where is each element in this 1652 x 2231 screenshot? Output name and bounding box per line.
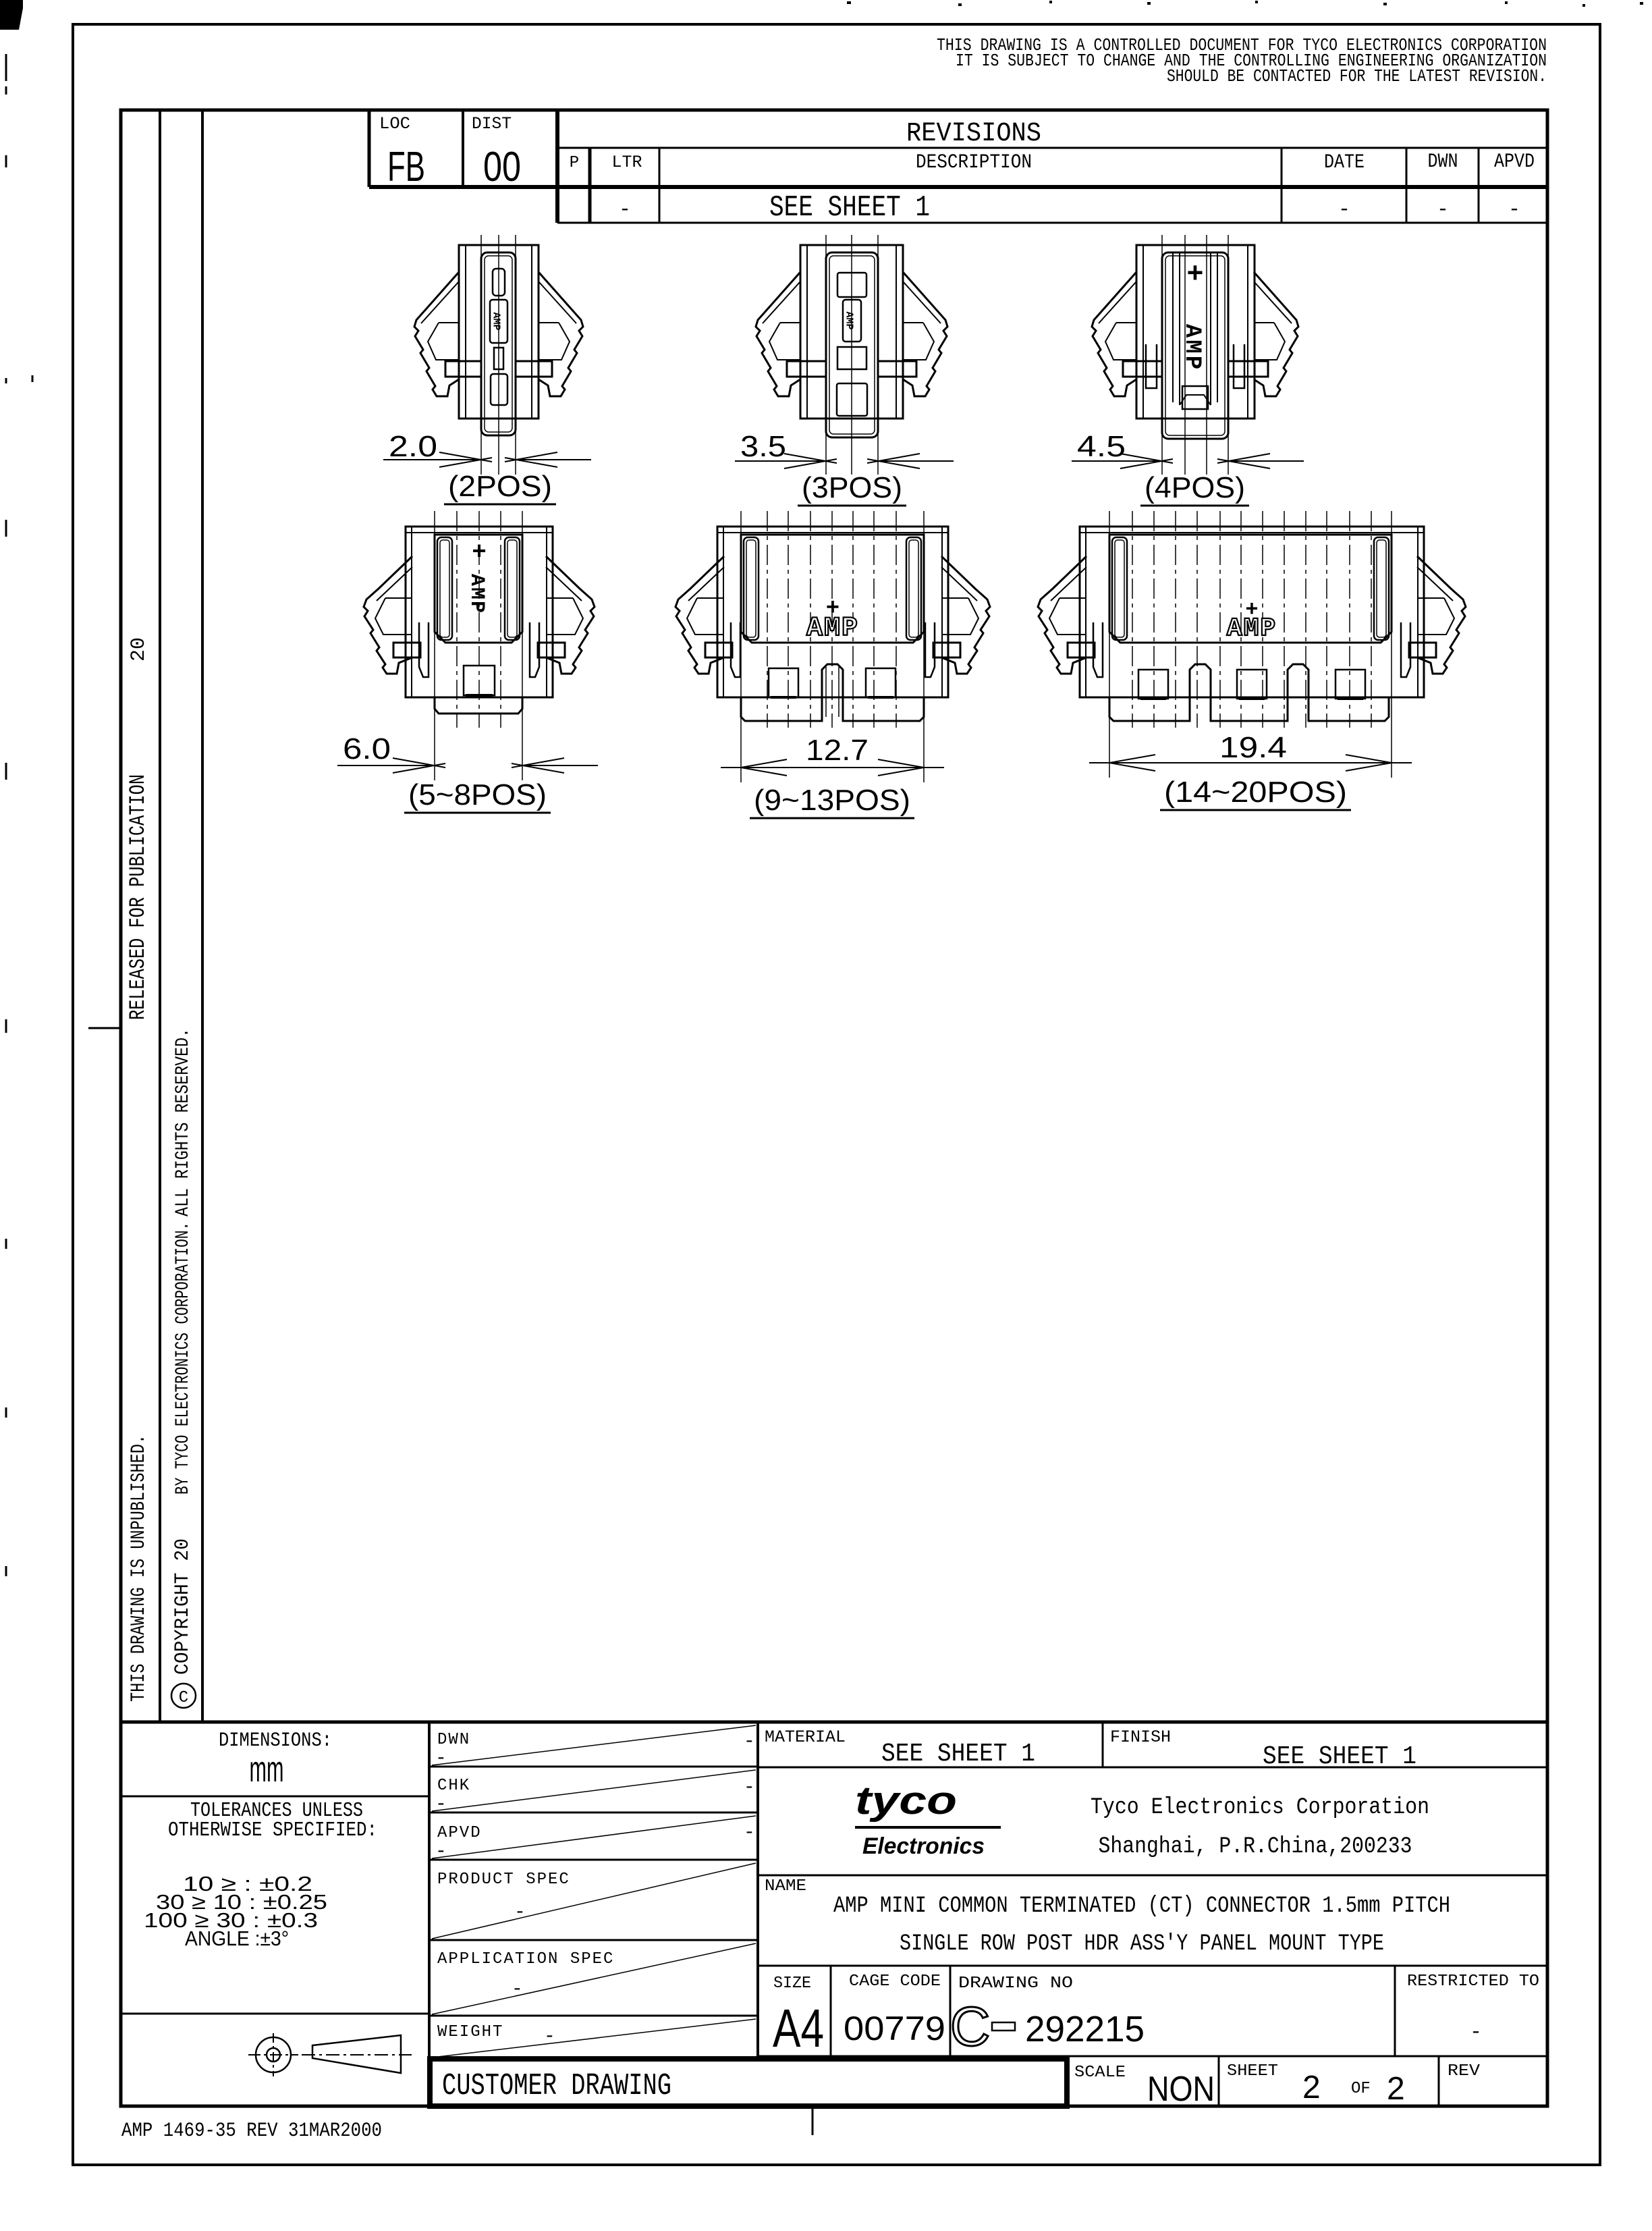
svg-text:mm: mm [250, 1749, 284, 1790]
svg-text:CHK: CHK [437, 1777, 470, 1795]
svg-text:(14~20POS): (14~20POS) [1164, 776, 1347, 809]
svg-text:292215: 292215 [1025, 2009, 1145, 2049]
svg-text:LTR: LTR [612, 153, 642, 172]
svg-text:AMP: AMP [465, 574, 488, 614]
svg-text:(4POS): (4POS) [1145, 471, 1245, 504]
svg-text:6.0: 6.0 [343, 732, 391, 765]
svg-text:SHEET: SHEET [1227, 2062, 1278, 2080]
svg-text:2.0: 2.0 [389, 430, 437, 463]
svg-text:SEE SHEET 1: SEE SHEET 1 [1263, 1742, 1416, 1771]
svg-text:SEE SHEET 1: SEE SHEET 1 [881, 1740, 1035, 1769]
svg-text:(5~8POS): (5~8POS) [408, 778, 547, 811]
svg-text:(3POS): (3POS) [802, 471, 902, 504]
svg-text:+: + [1186, 259, 1203, 291]
svg-text:LOC: LOC [379, 114, 410, 134]
svg-text:RESTRICTED TO: RESTRICTED TO [1407, 1972, 1539, 1991]
svg-text:AMP: AMP [1179, 324, 1205, 371]
svg-text:APVD: APVD [437, 1824, 482, 1842]
svg-text:Electronics: Electronics [862, 1833, 985, 1859]
svg-text:OF: OF [1351, 2080, 1371, 2098]
svg-text:-: - [1338, 198, 1350, 221]
svg-text:Tyco Electronics Corporation: Tyco Electronics Corporation [1091, 1795, 1429, 1821]
svg-text:DWN: DWN [1428, 151, 1458, 173]
svg-text:ANGLE :±3°: ANGLE :±3° [185, 1927, 289, 1950]
svg-text:COPYRIGHT 20: COPYRIGHT 20 [171, 1538, 194, 1675]
svg-text:-: - [435, 1842, 447, 1862]
svg-text:00: 00 [483, 144, 521, 190]
svg-text:(9~13POS): (9~13POS) [754, 784, 910, 817]
svg-text:-: - [512, 1979, 523, 2000]
svg-text:+: + [472, 539, 487, 566]
svg-text:-: - [544, 2026, 555, 2047]
svg-text:AMP MINI COMMON TERMINATED (CT: AMP MINI COMMON TERMINATED (CT) CONNECTO… [833, 1893, 1450, 1919]
svg-text:FB: FB [387, 144, 425, 190]
svg-text:SINGLE ROW POST HDR ASS'Y PANE: SINGLE ROW POST HDR ASS'Y PANEL MOUNT TY… [900, 1931, 1384, 1957]
svg-text:2: 2 [1302, 2070, 1321, 2105]
svg-text:SCALE: SCALE [1074, 2064, 1126, 2082]
svg-text:3.5: 3.5 [740, 430, 786, 463]
svg-text:-: - [744, 1823, 755, 1844]
svg-text:WEIGHT: WEIGHT [437, 2023, 503, 2041]
svg-text:-: - [435, 1794, 447, 1815]
svg-text:AMP: AMP [806, 614, 859, 644]
svg-text:-: - [1437, 198, 1449, 221]
svg-text:19.4: 19.4 [1219, 731, 1287, 764]
svg-text:PRODUCT SPEC: PRODUCT SPEC [437, 1871, 570, 1889]
svg-text:RELEASED FOR PUBLICATION: RELEASED FOR PUBLICATION [126, 774, 150, 1020]
svg-text:NON: NON [1147, 2070, 1215, 2109]
svg-text:-: - [435, 1748, 447, 1769]
svg-text:C: C [179, 1689, 188, 1707]
svg-text:SIZE: SIZE [773, 1974, 811, 1993]
svg-text:-: - [1508, 198, 1520, 221]
svg-text:AMP: AMP [1227, 614, 1277, 643]
svg-text:(2POS): (2POS) [448, 470, 552, 503]
svg-text:MATERIAL: MATERIAL [765, 1727, 846, 1747]
svg-text:OTHERWISE SPECIFIED:: OTHERWISE SPECIFIED: [168, 1819, 377, 1842]
svg-text:2: 2 [1387, 2071, 1405, 2107]
svg-text:12.7: 12.7 [806, 734, 869, 767]
svg-text:DATE: DATE [1324, 151, 1365, 174]
svg-text:APPLICATION SPEC: APPLICATION SPEC [437, 1950, 614, 1968]
svg-text:-: - [514, 1902, 526, 1923]
svg-text:Shanghai, P.R.China,200233: Shanghai, P.R.China,200233 [1099, 1834, 1412, 1860]
svg-text:AMP: AMP [491, 312, 502, 330]
svg-text:REV: REV [1448, 2062, 1481, 2080]
svg-text:DRAWING NO: DRAWING NO [958, 1974, 1073, 1993]
svg-text:REVISIONS: REVISIONS [906, 119, 1041, 149]
svg-text:-: - [744, 1731, 755, 1752]
svg-text:NAME: NAME [765, 1877, 806, 1896]
svg-text:SHOULD BE CONTACTED FOR THE LA: SHOULD BE CONTACTED FOR THE LATEST REVIS… [1167, 66, 1547, 86]
svg-text:FINISH: FINISH [1110, 1727, 1171, 1747]
svg-text:AMP: AMP [844, 311, 855, 329]
svg-text:C: C [950, 1996, 990, 2058]
svg-text:20: 20 [128, 637, 150, 662]
svg-text:APVD: APVD [1494, 151, 1535, 173]
svg-text:BY TYCO ELECTRONICS CORPORATIO: BY TYCO ELECTRONICS CORPORATION. [173, 1222, 194, 1495]
svg-text:ALL RIGHTS RESERVED.: ALL RIGHTS RESERVED. [173, 1028, 194, 1216]
svg-text:A4: A4 [773, 1998, 824, 2058]
svg-text:00779: 00779 [844, 2010, 945, 2047]
svg-text:CAGE CODE: CAGE CODE [849, 1972, 941, 1991]
svg-text:tyco: tyco [855, 1779, 957, 1823]
svg-text:-: - [619, 198, 631, 221]
svg-text:4.5: 4.5 [1077, 430, 1126, 463]
svg-text:DIST: DIST [472, 114, 512, 134]
svg-text:DWN: DWN [437, 1731, 470, 1749]
svg-text:-: - [1470, 2021, 1482, 2044]
svg-text:-: - [744, 1777, 755, 1798]
svg-text:DESCRIPTION: DESCRIPTION [916, 151, 1032, 174]
svg-text:SEE SHEET 1: SEE SHEET 1 [769, 191, 930, 225]
svg-text:THIS DRAWING IS UNPUBLISHED.: THIS DRAWING IS UNPUBLISHED. [128, 1434, 150, 1702]
svg-text:CUSTOMER DRAWING: CUSTOMER DRAWING [442, 2069, 671, 2103]
svg-text:AMP 1469-35 REV 31MAR2000: AMP 1469-35 REV 31MAR2000 [121, 2120, 382, 2143]
svg-text:P: P [570, 154, 579, 172]
